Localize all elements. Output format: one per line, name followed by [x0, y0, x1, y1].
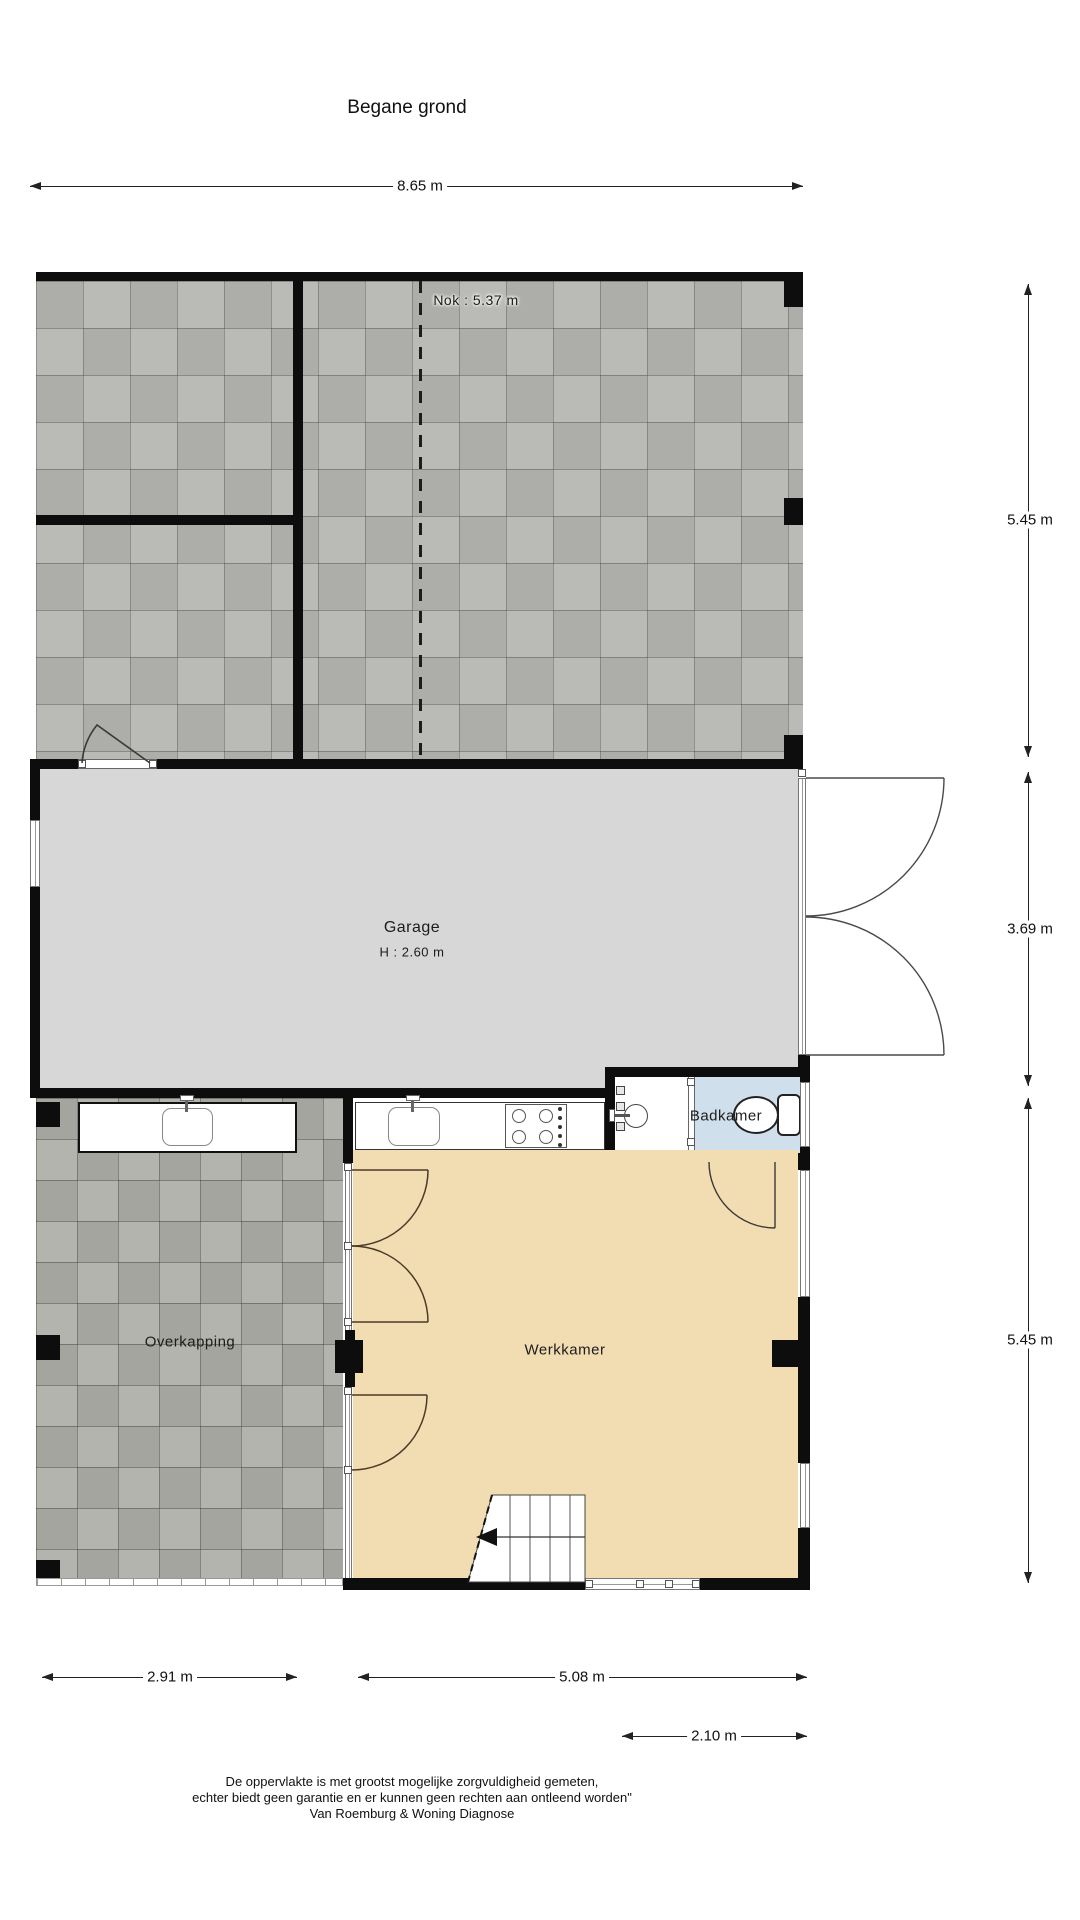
page-title: Begane grond	[347, 97, 466, 119]
tap-fixture-icon	[616, 1102, 625, 1111]
dimension-bottom-overkapping-label: 2.91 m	[143, 1669, 197, 1686]
stove-knob-icon	[558, 1107, 562, 1111]
tap-fixture-icon	[616, 1122, 625, 1131]
roof-left-cross-wall	[36, 515, 293, 525]
arrow-down-icon	[1024, 746, 1032, 757]
overkapping-edge-kerb	[36, 1578, 343, 1586]
roof-top-wall	[36, 272, 803, 281]
disclaimer-line-3: Van Roemburg & Woning Diagnose	[192, 1806, 632, 1822]
garage-label: Garage	[384, 919, 440, 937]
overkapping-post	[36, 1335, 60, 1360]
toilet-tank-icon	[777, 1094, 801, 1136]
werkkamer-right-window-lower	[800, 1463, 810, 1528]
roof-edge-pier-right	[784, 498, 803, 525]
overkapping-label: Overkapping	[145, 1334, 236, 1351]
arrow-up-icon	[1024, 772, 1032, 783]
garage-left-wall	[30, 759, 40, 1098]
door-hinge-icon	[798, 769, 806, 777]
werkkamer-label: Werkkamer	[525, 1342, 606, 1359]
garage-double-door-bottom-leaf	[806, 917, 944, 1055]
garage-left-window	[30, 820, 40, 887]
garage-height-label: H : 2.60 m	[380, 945, 445, 960]
door-hinge-icon	[344, 1466, 352, 1474]
dimension-right-middle-label: 3.69 m	[1003, 921, 1057, 938]
overkapping-post	[36, 1102, 60, 1127]
arrow-up-icon	[1024, 1098, 1032, 1109]
garage-door-frame	[798, 778, 806, 1055]
window-mullion-icon	[665, 1580, 673, 1588]
stove-burner-icon	[539, 1109, 553, 1123]
badkamer-window	[800, 1082, 810, 1147]
garage-double-door-top-leaf	[806, 778, 944, 916]
werkkamer-bottom-wall-right	[700, 1578, 810, 1590]
werkkamer-right-wall-stub	[798, 1162, 810, 1170]
door-hinge-icon	[344, 1163, 352, 1171]
stove-burner-icon	[539, 1130, 553, 1144]
window-mullion-icon	[636, 1580, 644, 1588]
werkkamer-left-wall-top	[343, 1098, 353, 1163]
dimension-top-label: 8.65 m	[393, 178, 447, 195]
arrow-right-icon	[792, 182, 803, 190]
window-mullion-icon	[585, 1580, 593, 1588]
werkkamer-right-pier	[772, 1340, 800, 1367]
dimension-bottom-badkamer-label: 2.10 m	[687, 1728, 741, 1745]
stove-knob-icon	[558, 1134, 562, 1138]
stove-knob-icon	[558, 1125, 562, 1129]
garage-rear-door-opening	[78, 759, 157, 769]
disclaimer-line-1: De oppervlakte is met grootst mogelijke …	[192, 1774, 632, 1790]
werkkamer-left-pier-stub	[345, 1373, 355, 1387]
dimension-bottom-werkkamer-label: 5.08 m	[555, 1669, 609, 1686]
washbasin-faucet-icon	[609, 1109, 615, 1122]
arrow-down-icon	[1024, 1075, 1032, 1086]
arrow-right-icon	[286, 1673, 297, 1681]
kitchen-faucet-icon	[411, 1101, 414, 1112]
door-hinge-icon	[149, 760, 157, 768]
arrow-left-icon	[358, 1673, 369, 1681]
arrow-left-icon	[42, 1673, 53, 1681]
floorplan-page: { "title": "Begane grond", "roof": { "no…	[0, 0, 1080, 1920]
counter-faucet-icon	[185, 1101, 188, 1112]
roof-corner-pier-top-right	[784, 272, 803, 307]
stove-knob-icon	[558, 1143, 562, 1147]
arrow-right-icon	[796, 1673, 807, 1681]
werkkamer-right-window-upper	[800, 1170, 810, 1297]
stove-burner-icon	[512, 1109, 526, 1123]
arrow-left-icon	[622, 1732, 633, 1740]
badkamer-top-wall	[605, 1067, 810, 1077]
door-hinge-icon	[344, 1387, 352, 1395]
werkkamer-floor-upper	[605, 1162, 798, 1222]
door-hinge-icon	[687, 1078, 695, 1086]
arrow-down-icon	[1024, 1572, 1032, 1583]
garage-right-wall-stub	[798, 1055, 810, 1067]
roof-divider-wall	[293, 281, 303, 765]
badkamer-label: Badkamer	[690, 1108, 762, 1125]
counter-sink-icon	[162, 1108, 213, 1146]
werkkamer-left-pier	[335, 1340, 363, 1373]
arrow-left-icon	[30, 182, 41, 190]
stove-burner-icon	[512, 1130, 526, 1144]
window-mullion-icon	[692, 1580, 700, 1588]
werkkamer-bottom-wall-left	[343, 1578, 585, 1590]
door-hinge-icon	[344, 1318, 352, 1326]
door-hinge-icon	[78, 760, 86, 768]
door-hinge-icon	[687, 1138, 695, 1146]
werkkamer-right-wall	[798, 1297, 810, 1463]
arrow-right-icon	[796, 1732, 807, 1740]
ridge-height-label: Nok : 5.37 m	[433, 292, 518, 308]
kitchen-sink-icon	[388, 1107, 440, 1146]
garage-bottom-wall	[30, 1088, 615, 1098]
stove-knob-icon	[558, 1116, 562, 1120]
arrow-up-icon	[1024, 284, 1032, 295]
werkkamer-left-pier-stub	[345, 1330, 355, 1340]
door-hinge-icon	[344, 1242, 352, 1250]
tap-fixture-icon	[616, 1086, 625, 1095]
disclaimer-line-2: echter biedt geen garantie en er kunnen …	[192, 1790, 632, 1806]
ridge-dashed-line	[419, 281, 422, 765]
dimension-right-top-label: 5.45 m	[1003, 512, 1057, 529]
footer-disclaimer: De oppervlakte is met grootst mogelijke …	[192, 1774, 632, 1822]
dimension-right-bottom-label: 5.45 m	[1003, 1332, 1057, 1349]
